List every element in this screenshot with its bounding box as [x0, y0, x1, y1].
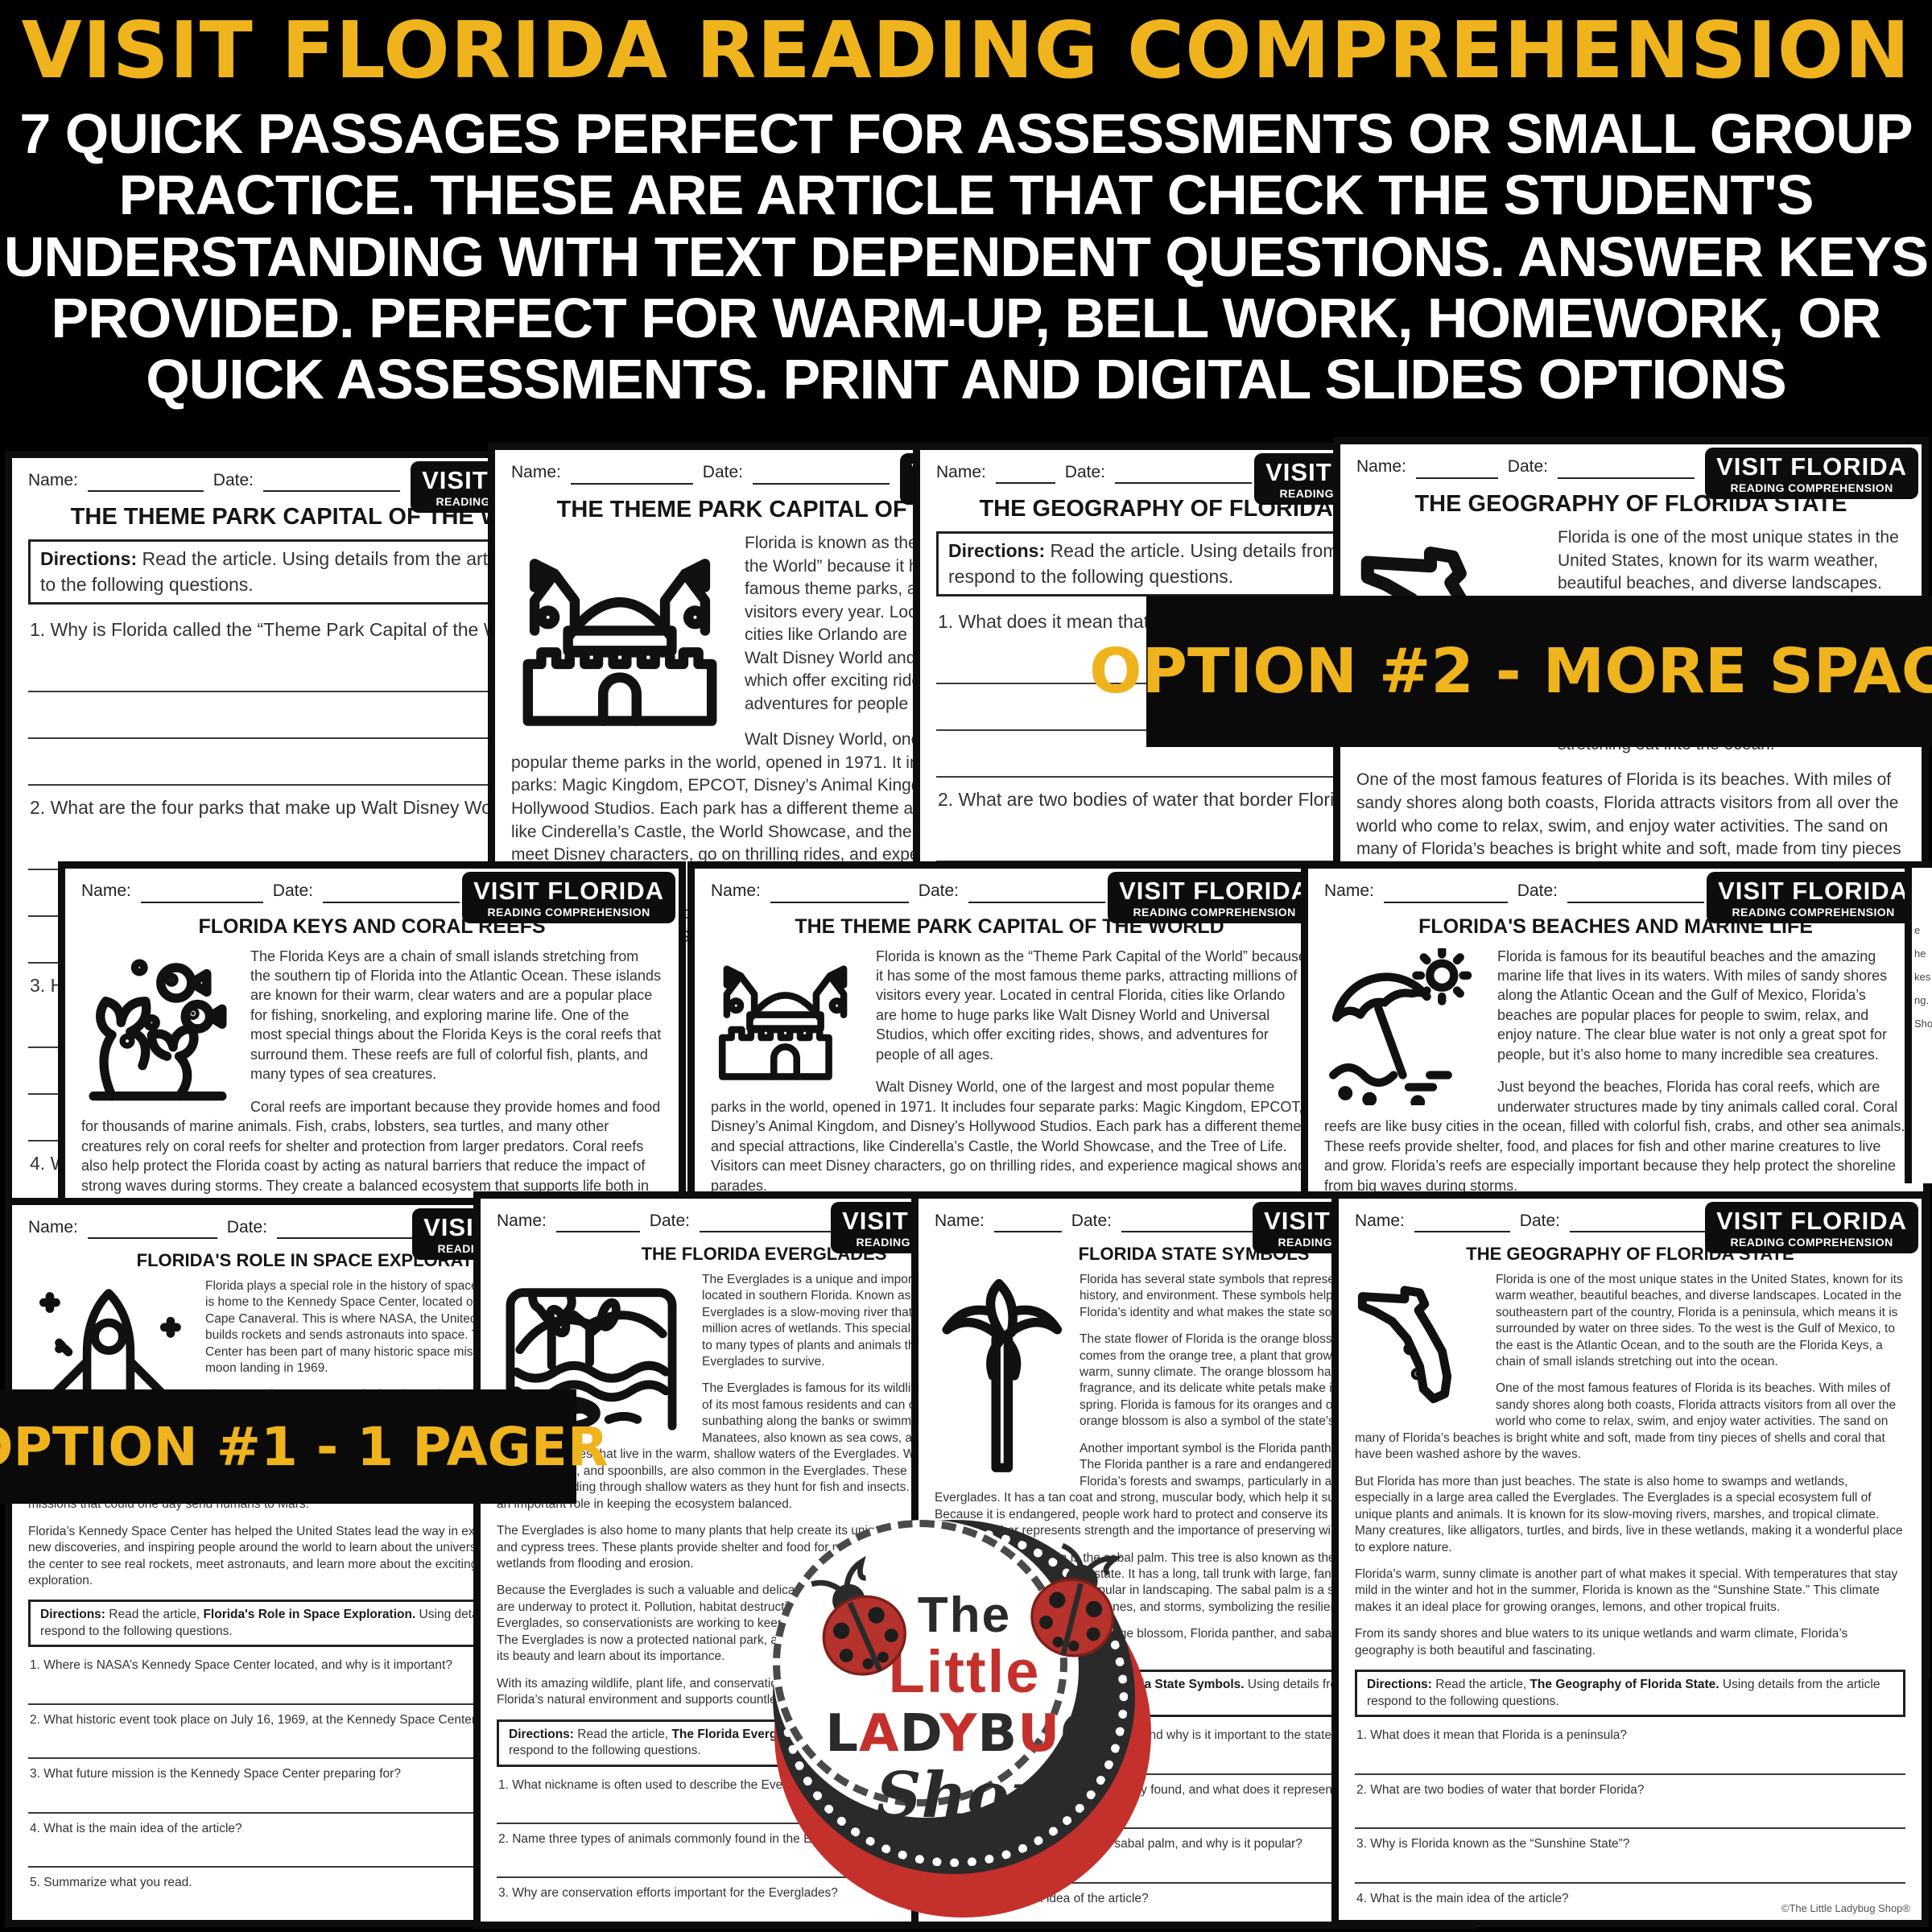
cut-worksheet-sliver: ehekesng.Shop®: [1905, 868, 1932, 1183]
question-item: 2. What are two bodies of water that bor…: [1355, 1775, 1905, 1829]
coral-reef-icon: [81, 948, 234, 1109]
option-2-banner: OPTION #2 - MORE SPACE: [1146, 596, 1932, 747]
visit-florida-badge: VISIT FLORIDAREADING COMPREHENSION: [1108, 872, 1321, 923]
castle-icon: [711, 948, 860, 1084]
visit-florida-badge: VISIT FLORIDAREADING COMPREHENSION: [1707, 872, 1920, 923]
florida-map-icon: [1355, 1274, 1480, 1414]
little-ladybug-shop-logo: The Little LADYBUG Shop: [773, 1520, 1156, 1927]
palm-tree-icon: [935, 1274, 1063, 1475]
visit-florida-badge: VISIT FLORIDAREADING COMPREHENSION: [1705, 1202, 1918, 1253]
beach-umbrella-icon: [1324, 948, 1481, 1105]
copyright-credit: ©The Little Ladybug Shop®: [1781, 1901, 1910, 1915]
passage: Florida is one of the most unique states…: [1355, 1272, 1905, 1660]
castle-icon: [511, 534, 729, 731]
visit-florida-badge: VISIT FLORIDAREADING COMPREHENSION: [1705, 448, 1918, 499]
visit-florida-badge: VISIT FLORIDAREADING COMPREHENSION: [462, 872, 675, 923]
page-title: VISIT FLORIDA READING COMPREHENSION: [0, 5, 1932, 96]
product-preview-image: { "colors":{"accent_yellow":"#efb41d","p…: [0, 0, 1932, 1932]
question-item: 3. Why is Florida known as the “Sunshine…: [1355, 1829, 1905, 1883]
option-1-banner: OPTION #1 - 1 PAGER: [0, 1389, 576, 1504]
worksheet-geography-onepager: VISIT FLORIDAREADING COMPREHENSION Name:…: [1331, 1191, 1929, 1927]
question-list: 1. What does it mean that Florida is a p…: [1355, 1720, 1905, 1927]
question-item: 1. What does it mean that Florida is a p…: [1355, 1720, 1905, 1774]
page-subtitle: 7 QUICK PASSAGES PERFECT FOR ASSESSMENTS…: [0, 103, 1932, 410]
directions-box: Directions: Read the article, The Geogra…: [1355, 1670, 1905, 1717]
